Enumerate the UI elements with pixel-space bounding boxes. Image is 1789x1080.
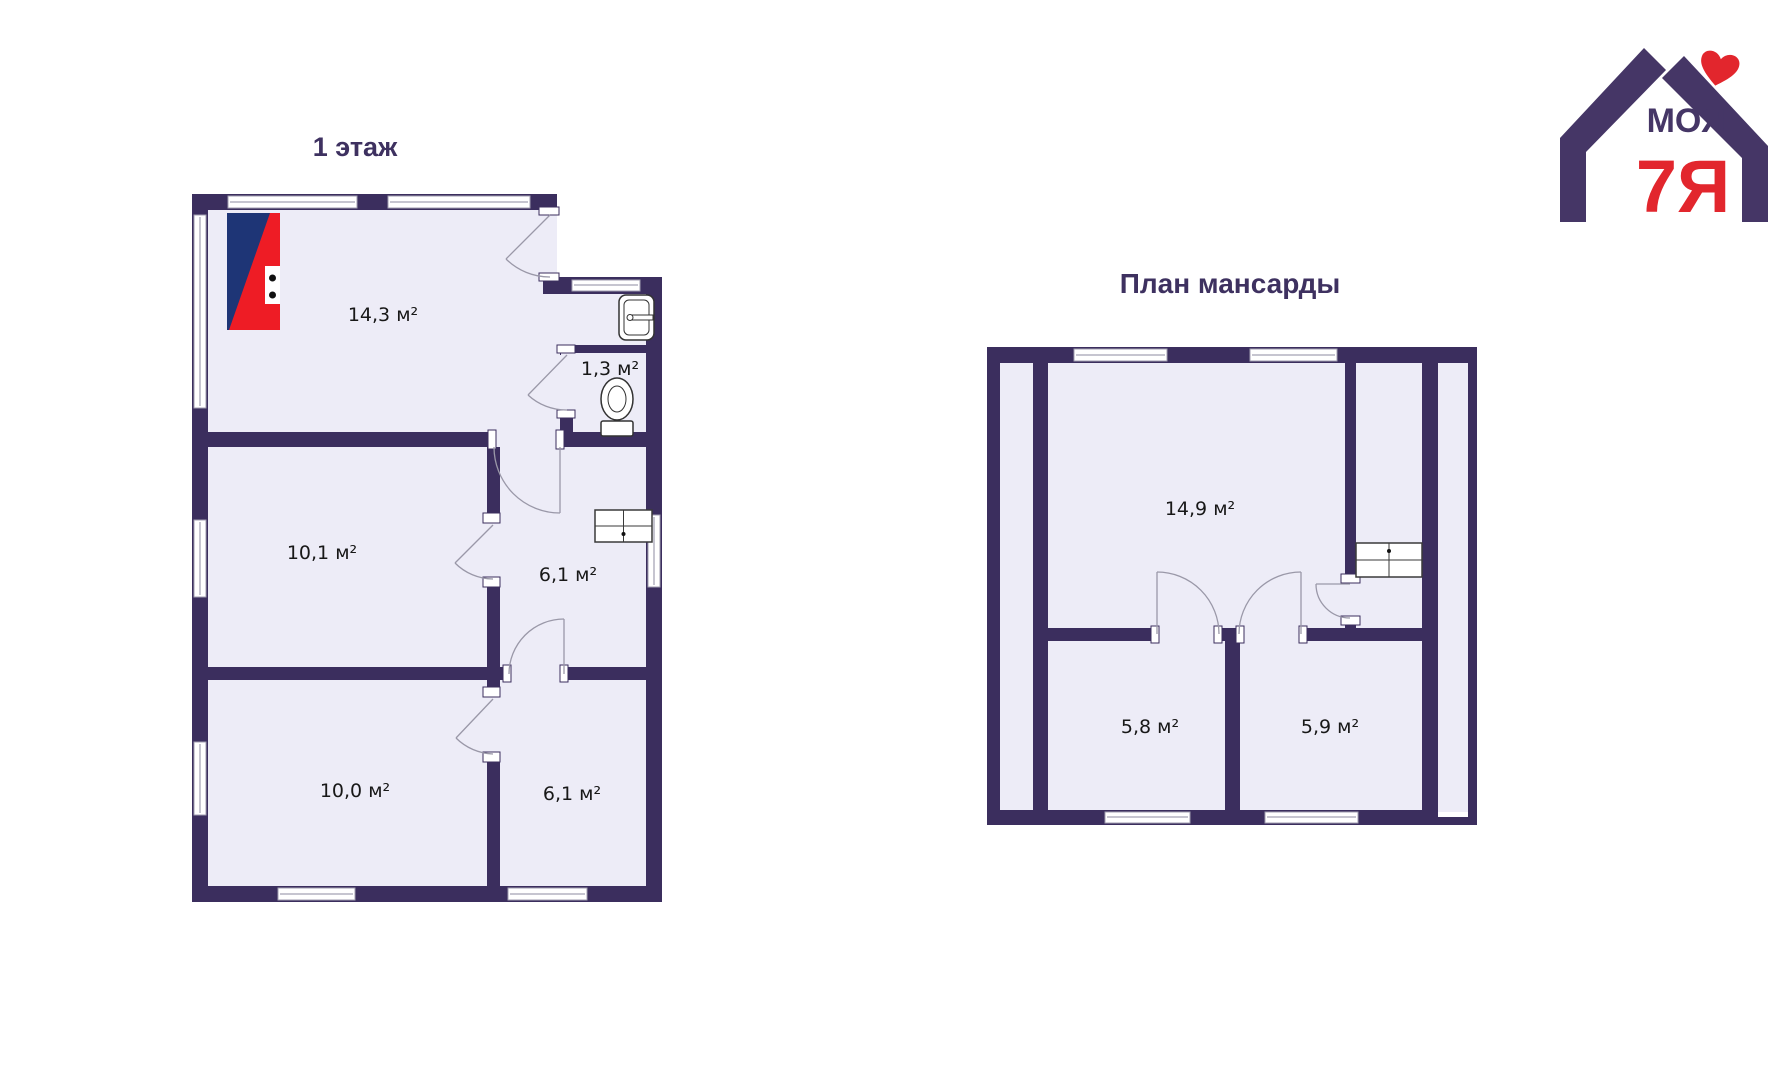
room-label-10-1: 10,1 м² xyxy=(287,542,357,564)
room-label-10-0: 10,0 м² xyxy=(320,780,390,802)
stove-flag-icon xyxy=(227,213,280,330)
room-label-6-1-bottom: 6,1 м² xyxy=(543,783,601,805)
sink-icon xyxy=(619,295,654,340)
room-label-5-9: 5,9 м² xyxy=(1301,716,1359,738)
floor1-title: 1 этаж xyxy=(255,132,455,163)
stove-flue-icon xyxy=(595,510,652,542)
floorplan-page: 1 этаж План мансарды xyxy=(0,0,1789,1080)
room-label-6-1-middle: 6,1 м² xyxy=(539,564,597,586)
floorplan-attic: 14,9 м² 5,8 м² 5,9 м² xyxy=(980,340,1485,832)
room-label-14-3: 14,3 м² xyxy=(348,304,418,326)
attic-title: План мансарды xyxy=(1075,268,1385,300)
logo-word-top: МОЯ xyxy=(1647,102,1726,140)
floorplan-floor1: 14,3 м² 1,3 м² 10,1 м² 6,1 м² 10,0 м² 6,… xyxy=(185,185,670,910)
room-label-14-9: 14,9 м² xyxy=(1165,498,1235,520)
room-label-1-3: 1,3 м² xyxy=(581,358,639,380)
room-label-5-8: 5,8 м² xyxy=(1121,716,1179,738)
agency-logo: МОЯ 7Я xyxy=(1546,40,1776,230)
toilet-icon xyxy=(601,378,633,436)
logo-word-bottom: 7Я xyxy=(1636,145,1730,228)
attic-flue-icon xyxy=(1356,543,1422,577)
